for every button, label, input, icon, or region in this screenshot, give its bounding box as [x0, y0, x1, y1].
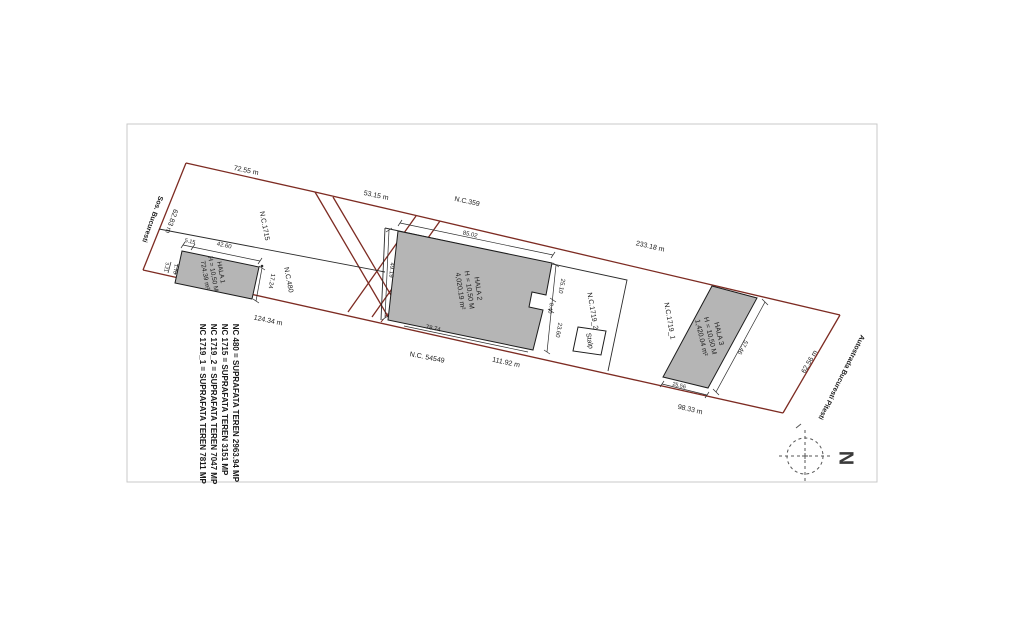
legend-lines: NC 1719_1 = SUPRAFATA TEREN 7811 MP NC 1…	[197, 324, 241, 485]
hala2-parcel-left-edge	[381, 228, 385, 320]
compass-tick	[796, 424, 801, 428]
hala-2-label: HALA 2 H = 10,50 M 4,020.19 m²	[452, 269, 483, 311]
legend-line-nc1719-1: NC 1719_1 = SUPRAFATA TEREN 7811 MP	[197, 324, 208, 485]
legend-line-nc1719-2: NC 1719_2 = SUPRAFATA TEREN 7047 MP	[208, 324, 219, 485]
cadastral-site-plan: Sos. Bucuresti Autostrada Bucuresti Pite…	[0, 0, 1024, 631]
north-compass	[779, 424, 831, 482]
site-plan-drawing	[0, 0, 1024, 631]
compass-north-label: N	[834, 451, 857, 465]
legend-line-nc480: NC 480 = SUPRAFATA TEREN 2963.94 MP	[230, 324, 241, 485]
legend-line-nc1715: NC 1715 = SUPRAFATA TEREN 3151 MP	[219, 324, 230, 485]
access-strip-line-1	[315, 192, 390, 320]
legend: NC 1719_1 = SUPRAFATA TEREN 7811 MP NC 1…	[197, 324, 241, 485]
